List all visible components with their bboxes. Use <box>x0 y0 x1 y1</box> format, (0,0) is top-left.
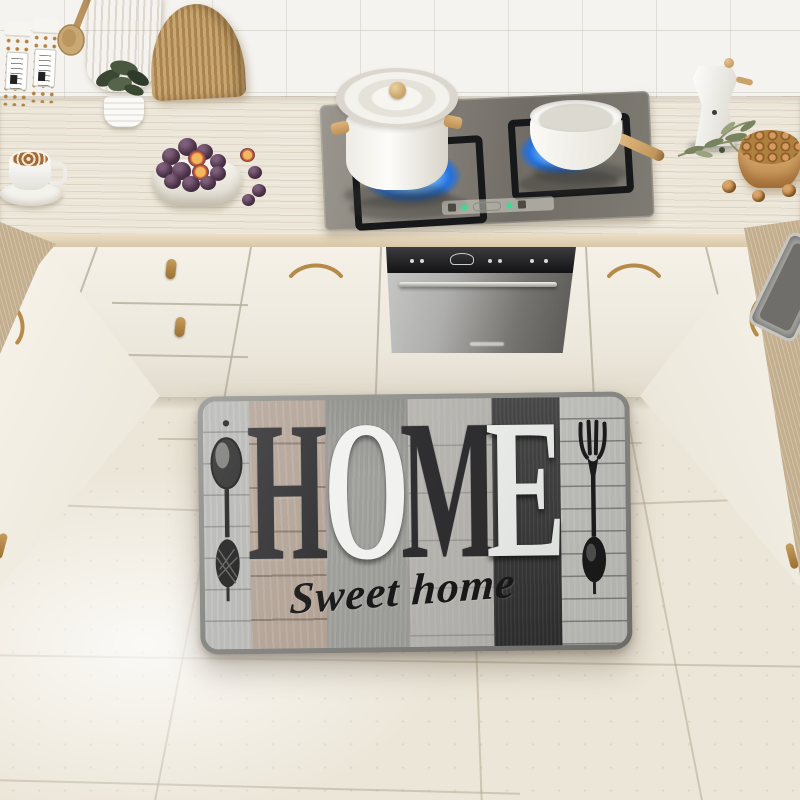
floor-grout-line <box>475 646 483 800</box>
fig <box>200 176 216 190</box>
walnuts-in-bowl <box>740 130 800 164</box>
pan-wood-handle <box>616 132 666 162</box>
jar-label <box>5 51 29 90</box>
pot-lid-knob <box>389 82 406 99</box>
moka-lid-knob <box>724 58 734 68</box>
control-slider-icon <box>473 201 501 211</box>
drawer-pull-handle <box>165 259 177 280</box>
cabinet-curved-handle <box>606 260 662 280</box>
fig-bowl-group <box>148 132 294 210</box>
drawer-pull-handle <box>174 317 186 338</box>
latte-art <box>10 150 50 168</box>
cabinet-seam <box>375 247 382 399</box>
fig <box>182 176 200 192</box>
cabinet-seam <box>585 247 594 399</box>
mat-strip-spoon <box>203 401 252 650</box>
fork-icon <box>559 396 627 645</box>
fig <box>242 194 255 206</box>
oven-logo <box>470 342 504 346</box>
mat-letter-h: H <box>246 396 329 593</box>
cabinet-handle <box>0 532 8 559</box>
cup-handle <box>50 162 67 185</box>
potted-plant <box>90 56 154 130</box>
spoon-icon <box>203 401 252 650</box>
oven-handle <box>399 282 557 287</box>
power-indicator <box>462 204 467 209</box>
oven-door <box>386 273 576 353</box>
mat-letter-o: O <box>323 396 411 592</box>
mat-strip-fork <box>559 396 627 645</box>
oven-control-panel <box>386 247 576 273</box>
oven-dial-icon <box>450 253 474 265</box>
fig-cut <box>240 148 255 162</box>
walnut-bowl-group <box>736 124 800 204</box>
cabinet-curved-handle <box>288 260 344 280</box>
control-icon <box>518 200 526 208</box>
built-in-oven <box>386 247 576 353</box>
fig <box>252 184 266 197</box>
fig <box>248 166 262 179</box>
kitchen-mat: H O M E Sweet home <box>197 391 632 654</box>
drawer-seam <box>120 354 248 358</box>
saucepan <box>518 86 668 190</box>
coffee-cup <box>0 146 70 210</box>
walnut <box>722 180 736 193</box>
kitchen-scene: H O M E Sweet home <box>0 0 800 800</box>
dutch-oven-pot <box>336 60 458 212</box>
pan-rim <box>530 100 622 132</box>
jar-lid <box>4 21 31 37</box>
walnut <box>752 190 765 202</box>
countertop-front-edge <box>0 234 800 248</box>
fig <box>164 174 181 189</box>
oven-indicator-dots <box>410 259 414 263</box>
mat-print: H O M E Sweet home <box>203 396 628 649</box>
drawer-seam <box>112 302 248 306</box>
snack-jar <box>1 21 31 106</box>
power-indicator <box>507 202 512 207</box>
plant-pot <box>104 96 144 127</box>
walnut <box>782 184 796 197</box>
cabinet-seam <box>224 247 252 397</box>
